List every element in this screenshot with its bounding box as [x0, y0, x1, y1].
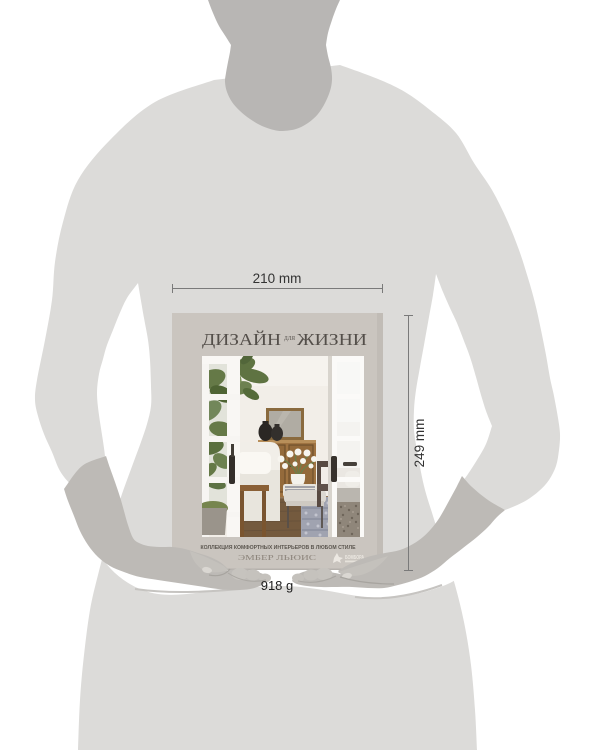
svg-text:249 mm: 249 mm — [412, 419, 427, 468]
svg-text:210 mm: 210 mm — [253, 271, 302, 286]
svg-text:918 g: 918 g — [261, 578, 294, 593]
